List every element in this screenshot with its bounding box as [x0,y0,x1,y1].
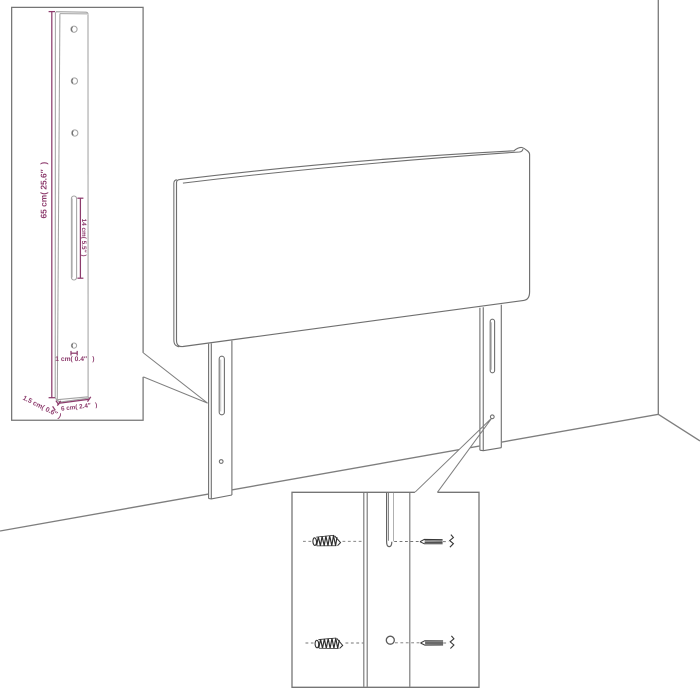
svg-text:14 cm( 5.5″ ): 14 cm( 5.5″ ) [80,219,87,257]
svg-text:): ) [92,356,94,363]
svg-text:1 cm( 0.4″: 1 cm( 0.4″ [55,356,88,363]
svg-text:65 cm( 25.6″ ): 65 cm( 25.6″ ) [38,162,48,219]
